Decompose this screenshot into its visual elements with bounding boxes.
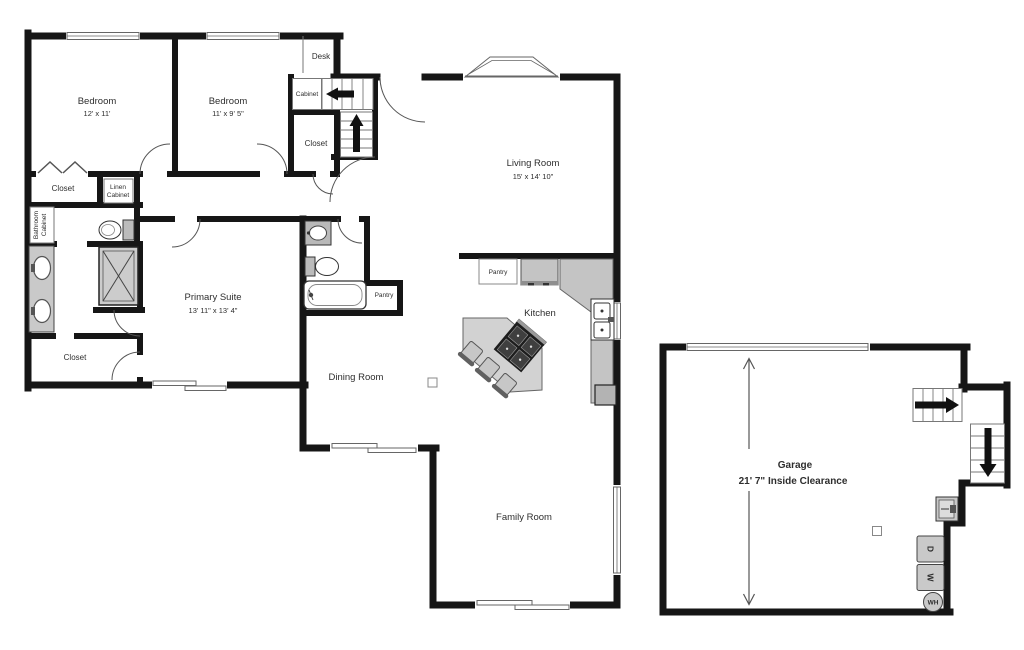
bedroom1-dims: 12' x 11' — [84, 109, 111, 118]
column — [873, 527, 882, 536]
living-room-label: Living Room — [507, 158, 560, 169]
primary-closet-door — [112, 352, 140, 380]
bathroom-cabinet-label-2: Cabinet — [41, 214, 48, 237]
windows — [36, 29, 870, 611]
floor-plan: Bedroom 12' x 11' Bedroom 11' x 9' 5" De… — [0, 0, 1024, 650]
bedroom1-door — [140, 144, 170, 174]
hall-closet-label: Closet — [305, 139, 328, 148]
primary-bath-door — [114, 310, 140, 336]
column — [428, 378, 437, 387]
hall-bath-door — [338, 219, 362, 243]
hall-bath — [304, 221, 366, 309]
kitchen-label: Kitchen — [524, 308, 556, 319]
living-room-dims: 15' x 14' 10" — [513, 172, 554, 181]
closet-folding-door — [36, 162, 88, 179]
kitchen-sink-icon — [591, 299, 614, 340]
sink-icon — [34, 257, 51, 280]
garage-label: Garage — [778, 460, 813, 471]
primary-slider — [152, 379, 227, 391]
primary-suite-dims: 13' 11" x 13' 4" — [189, 306, 238, 315]
dining-room-label: Dining Room — [329, 372, 384, 383]
bathtub-icon — [304, 281, 366, 309]
washer-label: W — [926, 573, 936, 582]
linen-cabinet-label-2: Cabinet — [107, 192, 130, 199]
bay-window — [463, 57, 560, 83]
primary-suite-door — [172, 219, 200, 247]
primary-closet-label: Closet — [64, 353, 87, 362]
hall-pantry-label: Pantry — [375, 292, 395, 299]
linen-cabinet-label-1: Linen — [110, 184, 126, 191]
floor-plan-page: Bedroom 12' x 11' Bedroom 11' x 9' 5" De… — [0, 0, 1024, 650]
toilet-icon — [305, 257, 339, 276]
sink-icon — [305, 221, 331, 245]
bedroom1-label: Bedroom — [78, 96, 117, 107]
bedroom2-dims: 11' x 9' 5" — [212, 109, 244, 118]
desk-label: Desk — [312, 52, 331, 61]
water-heater-label: WH — [928, 600, 939, 607]
utility-sink-icon — [936, 497, 958, 521]
cabinet-label: Cabinet — [296, 91, 319, 98]
garage-appliances — [917, 497, 958, 612]
garage-door — [686, 340, 870, 353]
bedroom-closet-label: Closet — [52, 184, 75, 193]
refrigerator-icon — [521, 259, 558, 286]
dishwasher-icon — [595, 385, 616, 405]
kitchen-pantry-label: Pantry — [489, 269, 509, 276]
kitchen-fixtures — [457, 259, 616, 405]
door-arcs — [112, 77, 425, 380]
family-slider — [475, 598, 570, 611]
garage-dims: 21' 7" Inside Clearance — [739, 476, 848, 487]
shower-icon — [99, 247, 138, 305]
garage-stairs — [913, 389, 1005, 484]
front-door — [380, 77, 425, 122]
dryer-label: D — [926, 546, 936, 552]
dining-slider — [330, 441, 418, 454]
toilet-icon — [99, 220, 134, 240]
bedroom2-door — [257, 144, 287, 174]
family-room-label: Family Room — [496, 512, 552, 523]
sink-icon — [34, 300, 51, 323]
bathroom-cabinet-label-1: Bathroom — [33, 211, 40, 239]
linen-cabinet-box — [104, 179, 133, 203]
bedroom2-label: Bedroom — [209, 96, 248, 107]
primary-suite-label: Primary Suite — [184, 292, 241, 303]
